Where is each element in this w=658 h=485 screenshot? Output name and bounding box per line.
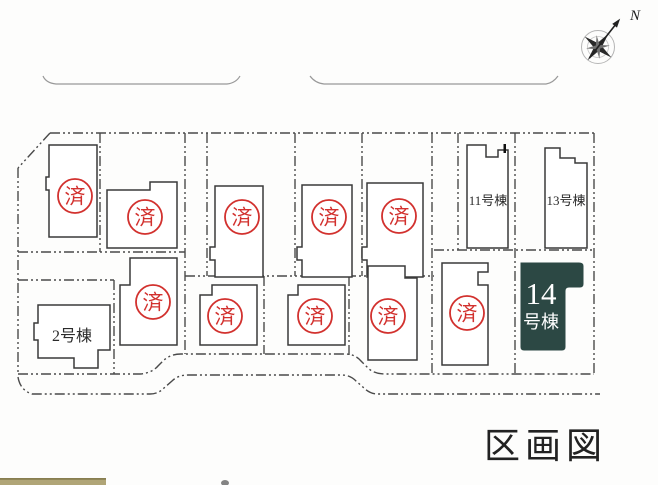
compass-icon [574, 8, 633, 71]
sold-stamp-char: 済 [457, 302, 478, 326]
diagram-title: 区画図 [484, 426, 607, 466]
lot-2-label: 2号棟 [52, 327, 92, 345]
lot-13-label: 13号棟 [546, 193, 585, 208]
legend-bar-partial [0, 480, 106, 485]
sold-stamp-char: 済 [135, 206, 156, 230]
sold-stamp-char: 済 [215, 305, 236, 329]
lot-boundary-line [18, 133, 50, 168]
building-footprint-sold-3 [210, 186, 263, 277]
compass-north-label: N [629, 8, 641, 24]
sold-stamp-char: 済 [378, 305, 399, 329]
lot-boundary-line [18, 354, 594, 374]
sold-stamp-char: 済 [389, 205, 410, 229]
sold-stamp-char: 済 [232, 206, 253, 230]
road-edge-line [310, 76, 558, 84]
plot-map-svg: 14号棟済済済済済済済済済済2号棟11号棟13号棟N区画図 [0, 0, 658, 485]
building-footprint-sold-4 [297, 185, 352, 277]
sold-stamp-char: 済 [305, 305, 326, 329]
cutoff-glyph-mark [221, 480, 229, 485]
building-footprint-sold-5 [362, 183, 423, 277]
plot-map: 14号棟済済済済済済済済済済2号棟11号棟13号棟N区画図 [0, 0, 658, 485]
sold-stamp-char: 済 [319, 206, 340, 230]
sold-stamp-char: 済 [65, 185, 86, 209]
building-entrance-tick [504, 144, 507, 153]
lot-14-number-label: 14 [526, 276, 558, 311]
sold-stamp-char: 済 [143, 291, 164, 315]
road-edge-line [43, 76, 240, 84]
lot-14-suffix-label: 号棟 [523, 312, 559, 332]
lot-11-label: 11号棟 [469, 193, 508, 208]
lot-boundary-line [18, 375, 600, 394]
legend-bar-edge [0, 478, 106, 480]
